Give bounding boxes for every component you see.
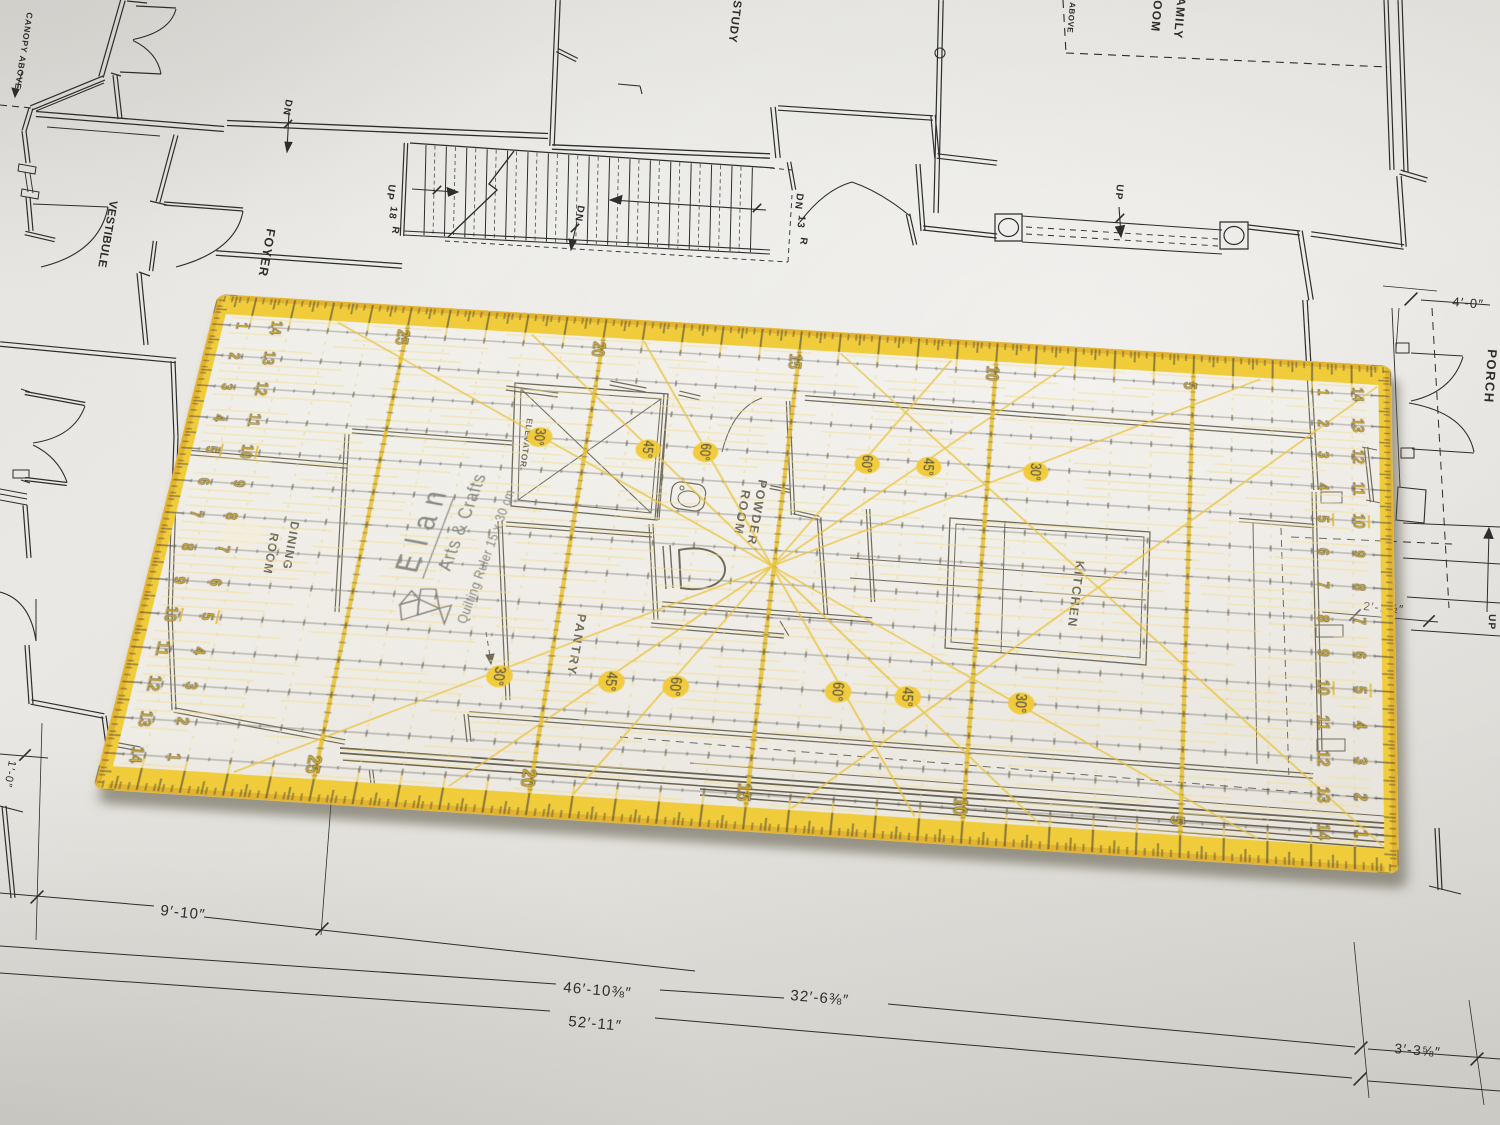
svg-text:5: 5 [1314, 515, 1331, 523]
svg-text:30°: 30° [488, 666, 508, 686]
svg-text:15: 15 [785, 353, 806, 369]
svg-text:14: 14 [1313, 823, 1332, 841]
svg-text:13: 13 [1313, 786, 1331, 804]
svg-text:4: 4 [1351, 721, 1369, 730]
svg-text:25: 25 [391, 329, 414, 345]
svg-text:UP: UP [383, 184, 396, 202]
svg-text:14: 14 [265, 321, 285, 335]
svg-text:7: 7 [1314, 581, 1332, 590]
svg-text:45°: 45° [919, 458, 937, 476]
svg-text:UP: UP [1485, 614, 1497, 631]
svg-text:18: 18 [386, 206, 399, 221]
svg-text:9: 9 [169, 576, 188, 585]
svg-text:1: 1 [163, 753, 183, 762]
svg-text:14: 14 [1349, 387, 1366, 402]
svg-text:6: 6 [194, 477, 213, 485]
svg-text:11: 11 [243, 413, 263, 427]
svg-text:2: 2 [225, 352, 243, 360]
svg-text:5: 5 [1180, 381, 1200, 390]
svg-text:UP: UP [1112, 184, 1125, 201]
svg-text:4: 4 [189, 646, 209, 655]
svg-text:DN: DN [792, 193, 805, 211]
svg-text:60°: 60° [857, 455, 875, 473]
svg-text:20: 20 [516, 768, 541, 788]
svg-text:30°: 30° [1011, 693, 1029, 713]
svg-text:15: 15 [732, 782, 756, 802]
svg-text:10: 10 [160, 606, 181, 622]
svg-text:60°: 60° [828, 681, 847, 701]
svg-text:12: 12 [251, 381, 271, 396]
svg-text:20: 20 [588, 341, 610, 357]
svg-text:1: 1 [232, 322, 250, 330]
svg-text:R: R [389, 226, 401, 236]
svg-text:11: 11 [1349, 481, 1366, 496]
svg-text:10: 10 [1349, 513, 1366, 529]
svg-text:7: 7 [185, 510, 204, 518]
svg-text:1′-0″: 1′-0″ [1, 759, 18, 789]
svg-text:7: 7 [213, 545, 232, 554]
svg-text:R: R [797, 237, 809, 247]
svg-text:12: 12 [1313, 750, 1331, 767]
svg-text:32′-6⅜″: 32′-6⅜″ [790, 987, 850, 1009]
svg-text:11: 11 [151, 641, 172, 657]
svg-text:5: 5 [1351, 685, 1369, 694]
svg-text:9: 9 [1350, 550, 1368, 559]
svg-text:DN: DN [280, 98, 294, 116]
svg-text:1: 1 [1351, 829, 1370, 839]
svg-text:2: 2 [172, 717, 192, 726]
svg-text:4: 4 [209, 414, 228, 422]
svg-text:45°: 45° [897, 687, 916, 707]
svg-text:4: 4 [1314, 482, 1331, 490]
svg-text:10: 10 [949, 796, 972, 816]
svg-text:6: 6 [205, 578, 224, 587]
svg-text:10: 10 [982, 365, 1003, 382]
svg-text:CANOPY ABOVE: CANOPY ABOVE [13, 12, 35, 91]
svg-text:3: 3 [217, 383, 236, 391]
svg-text:30°: 30° [529, 428, 548, 446]
svg-text:5: 5 [197, 612, 217, 621]
svg-text:PORCH: PORCH [1481, 349, 1500, 404]
svg-text:STUDY: STUDY [726, 0, 743, 44]
svg-text:DN: DN [572, 205, 585, 223]
svg-text:45°: 45° [601, 671, 621, 691]
svg-text:3: 3 [1351, 756, 1369, 765]
svg-text:6: 6 [1314, 547, 1331, 556]
svg-text:6: 6 [1350, 651, 1368, 660]
svg-text:8: 8 [177, 543, 196, 552]
svg-text:3′-3⅝″: 3′-3⅝″ [1394, 1040, 1442, 1060]
svg-text:11: 11 [1313, 715, 1331, 731]
svg-text:8: 8 [1350, 583, 1368, 592]
svg-text:12: 12 [1349, 449, 1366, 464]
svg-text:FAMILY: FAMILY [1171, 0, 1189, 40]
svg-text:13: 13 [1349, 418, 1366, 433]
svg-text:1: 1 [1314, 388, 1331, 396]
svg-text:14: 14 [125, 746, 147, 763]
svg-text:60°: 60° [665, 676, 685, 696]
svg-text:VESTIBULE: VESTIBULE [95, 199, 119, 268]
svg-text:7: 7 [1350, 617, 1368, 626]
svg-text:2: 2 [1314, 419, 1331, 427]
svg-text:12: 12 [143, 675, 165, 692]
svg-text:60°: 60° [695, 443, 713, 461]
svg-text:3: 3 [180, 681, 200, 690]
svg-text:46′-10⅜″: 46′-10⅜″ [563, 979, 633, 1002]
svg-text:10: 10 [236, 444, 256, 459]
svg-text:10: 10 [1314, 679, 1332, 696]
svg-text:5: 5 [1166, 815, 1188, 826]
svg-text:13: 13 [258, 351, 278, 366]
svg-text:FOYER: FOYER [256, 227, 278, 278]
svg-text:3: 3 [1314, 451, 1331, 459]
svg-text:30°: 30° [1026, 463, 1043, 482]
svg-text:45°: 45° [638, 440, 657, 458]
svg-text:9′-10″: 9′-10″ [160, 902, 207, 924]
svg-text:8: 8 [1314, 614, 1332, 623]
svg-text:25: 25 [301, 755, 326, 775]
svg-text:13: 13 [134, 710, 156, 727]
svg-text:8: 8 [221, 512, 240, 520]
svg-text:2: 2 [1351, 793, 1369, 802]
svg-text:ROOM: ROOM [1148, 0, 1166, 33]
svg-text:ABOVE: ABOVE [1065, 2, 1077, 34]
svg-text:9: 9 [229, 479, 248, 487]
svg-text:9: 9 [1314, 648, 1332, 657]
svg-text:52′-11″: 52′-11″ [568, 1013, 623, 1035]
svg-text:5: 5 [201, 445, 220, 453]
